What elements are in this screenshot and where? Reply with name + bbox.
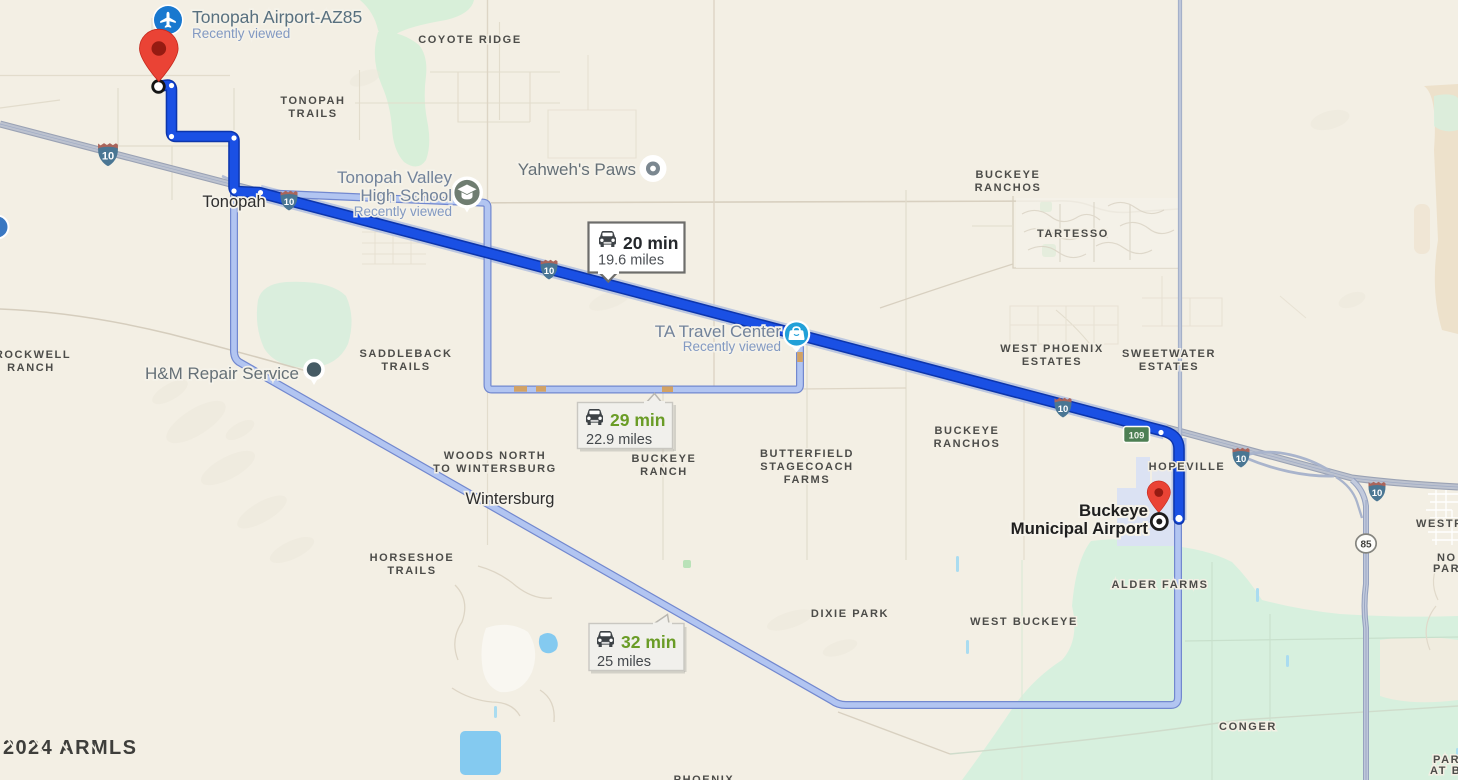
svg-text:SADDLEBACK: SADDLEBACK [360, 348, 453, 360]
svg-text:RANCHOS: RANCHOS [934, 438, 1001, 450]
svg-text:TRAILS: TRAILS [288, 108, 337, 120]
svg-text:RANCH: RANCH [640, 466, 688, 478]
svg-text:AT B: AT B [1430, 765, 1458, 777]
svg-text:Wintersburg: Wintersburg [466, 490, 555, 508]
svg-text:ESTATES: ESTATES [1022, 356, 1082, 368]
svg-text:BUCKEYE: BUCKEYE [935, 425, 1000, 437]
svg-text:PAR: PAR [1433, 563, 1458, 575]
svg-text:Tonopah Airport-AZ85: Tonopah Airport-AZ85 [192, 7, 362, 27]
svg-text:High School: High School [360, 186, 452, 205]
svg-text:HORSESHOE: HORSESHOE [370, 552, 455, 564]
svg-text:ESTATES: ESTATES [1139, 361, 1199, 373]
svg-text:19.6 miles: 19.6 miles [598, 253, 664, 269]
svg-text:WEST BUCKEYE: WEST BUCKEYE [970, 616, 1078, 628]
svg-text:FARMS: FARMS [784, 474, 831, 486]
svg-text:CONGER: CONGER [1219, 721, 1277, 733]
svg-text:TRAILS: TRAILS [387, 565, 436, 577]
svg-text:32 min: 32 min [621, 632, 676, 652]
svg-text:TRAILS: TRAILS [381, 361, 430, 373]
svg-text:SWEETWATER: SWEETWATER [1122, 348, 1216, 360]
svg-text:WESTPA: WESTPA [1416, 518, 1458, 530]
svg-text:20 min: 20 min [623, 233, 678, 253]
svg-text:25 miles: 25 miles [597, 654, 651, 670]
svg-text:WEST PHOENIX: WEST PHOENIX [1000, 343, 1104, 355]
svg-text:Yahweh's Paws: Yahweh's Paws [518, 160, 636, 179]
svg-text:WOODS NORTH: WOODS NORTH [444, 450, 547, 462]
svg-text:Recently viewed: Recently viewed [354, 204, 452, 219]
svg-text:DIXIE PARK: DIXIE PARK [811, 608, 889, 620]
svg-text:Tonopah: Tonopah [202, 193, 265, 211]
svg-text:Municipal Airport: Municipal Airport [1011, 519, 1149, 538]
svg-text:PHOENIX: PHOENIX [674, 774, 735, 780]
svg-text:85: 85 [1360, 540, 1372, 551]
svg-text:Buckeye: Buckeye [1079, 501, 1148, 520]
svg-text:TARTESSO: TARTESSO [1037, 228, 1109, 240]
svg-text:ALDER FARMS: ALDER FARMS [1111, 579, 1208, 591]
svg-text:STAGECOACH: STAGECOACH [760, 461, 853, 473]
svg-text:HOPEVILLE: HOPEVILLE [1149, 461, 1226, 473]
svg-text:22.9 miles: 22.9 miles [586, 432, 652, 448]
svg-text:TONOPAH: TONOPAH [280, 95, 345, 107]
svg-text:COYOTE RIDGE: COYOTE RIDGE [418, 34, 522, 46]
svg-text:Recently viewed: Recently viewed [192, 26, 290, 41]
svg-text:BUCKEYE: BUCKEYE [976, 169, 1041, 181]
svg-text:Recently viewed: Recently viewed [683, 339, 781, 354]
svg-text:Tonopah Valley: Tonopah Valley [337, 168, 452, 187]
svg-text:RANCH: RANCH [7, 362, 55, 374]
svg-text:TO WINTERSBURG: TO WINTERSBURG [433, 463, 557, 475]
svg-text:109: 109 [1129, 431, 1145, 442]
svg-text:BUCKEYE: BUCKEYE [632, 453, 697, 465]
svg-text:ROCKWELL: ROCKWELL [0, 349, 71, 361]
svg-text:RANCHOS: RANCHOS [975, 182, 1042, 194]
svg-text:BUTTERFIELD: BUTTERFIELD [760, 448, 854, 460]
svg-text:H&M Repair Service: H&M Repair Service [145, 364, 299, 383]
svg-text:29 min: 29 min [610, 410, 665, 430]
